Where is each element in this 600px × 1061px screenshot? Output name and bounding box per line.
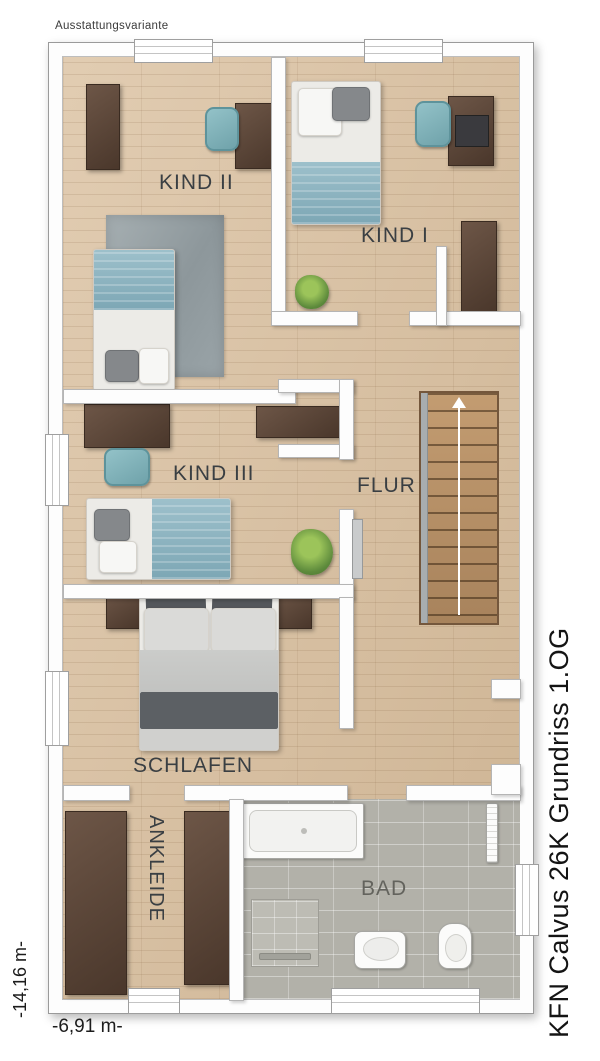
desk-chair [205, 107, 239, 151]
wall [63, 389, 296, 404]
toilet [438, 923, 472, 969]
washbasin [354, 931, 406, 969]
plant [295, 275, 329, 309]
wall [229, 799, 244, 1001]
width-dimension-label: -6,91 m- [52, 1016, 123, 1038]
double-bed [139, 591, 279, 751]
plant [291, 529, 333, 575]
bathtub [242, 803, 364, 859]
wall [436, 246, 447, 326]
bed-runner [140, 692, 278, 729]
bed-pillow [94, 509, 130, 541]
wardrobe [184, 811, 231, 985]
room-label-kind2: KIND II [159, 171, 234, 195]
wardrobe [461, 221, 497, 313]
plan-title: KFN Calvus 26K Grundriss 1.OG [544, 540, 588, 1038]
laptop [455, 115, 489, 147]
wardrobe [86, 84, 120, 170]
desk-chair [104, 448, 150, 486]
window [45, 671, 69, 746]
bed-pillow [105, 350, 139, 382]
shower [251, 899, 319, 967]
bed-pillow [332, 87, 370, 121]
bed-pillow [139, 348, 169, 384]
window [45, 434, 69, 506]
room-label-kind1: KIND I [361, 224, 429, 248]
window [364, 39, 443, 63]
wall [339, 597, 354, 729]
desk [84, 404, 170, 448]
bed-blanket [292, 162, 380, 224]
bed-blanket [152, 499, 230, 579]
single-bed [86, 498, 231, 580]
single-bed [93, 249, 175, 391]
room-label-bad: BAD [361, 877, 407, 901]
wall [491, 679, 521, 699]
shower-drain [259, 953, 311, 960]
staircase [419, 391, 499, 625]
towel-radiator [486, 803, 498, 863]
toilet-bowl [445, 934, 467, 962]
stair-handrail [421, 393, 428, 623]
bed-blanket [94, 250, 174, 310]
wall [271, 57, 286, 313]
wall [271, 311, 358, 326]
floorplan-page: Ausstattungsvariante [0, 0, 600, 1061]
room-label-schlafen: SCHLAFEN [133, 754, 253, 778]
wall [63, 785, 130, 801]
stair-direction-line [458, 406, 460, 615]
washbasin-bowl [363, 937, 399, 961]
wall [63, 584, 354, 599]
sideboard [256, 406, 340, 438]
room-label-kind3: KIND III [173, 462, 255, 486]
room-label-ankleide: ANKLEIDE [144, 815, 167, 991]
bathtub-drain [301, 828, 307, 834]
window [128, 988, 180, 1014]
variant-label: Ausstattungsvariante [55, 20, 168, 32]
wardrobe [65, 811, 127, 995]
room-label-flur: FLUR [357, 474, 416, 498]
door-leaf [352, 519, 363, 579]
bed-foot [140, 729, 278, 750]
window [331, 988, 480, 1014]
wall [339, 379, 354, 460]
height-dimension-label: -14,16 m- [10, 868, 40, 1018]
bed-duvet [140, 650, 278, 692]
single-bed [291, 81, 381, 225]
wall [491, 764, 521, 795]
window [515, 864, 539, 936]
window [134, 39, 213, 63]
stair-direction-arrow-icon [452, 397, 466, 408]
bed-pillow [211, 608, 276, 652]
desk [448, 96, 494, 166]
wall [409, 311, 521, 326]
desk-chair [415, 101, 451, 147]
bed-pillow [99, 541, 137, 573]
floorplan: KIND II KIND I KIND III FLUR SCHLAFEN AN… [48, 42, 534, 1014]
wall [184, 785, 348, 801]
bed-pillow [144, 608, 209, 652]
